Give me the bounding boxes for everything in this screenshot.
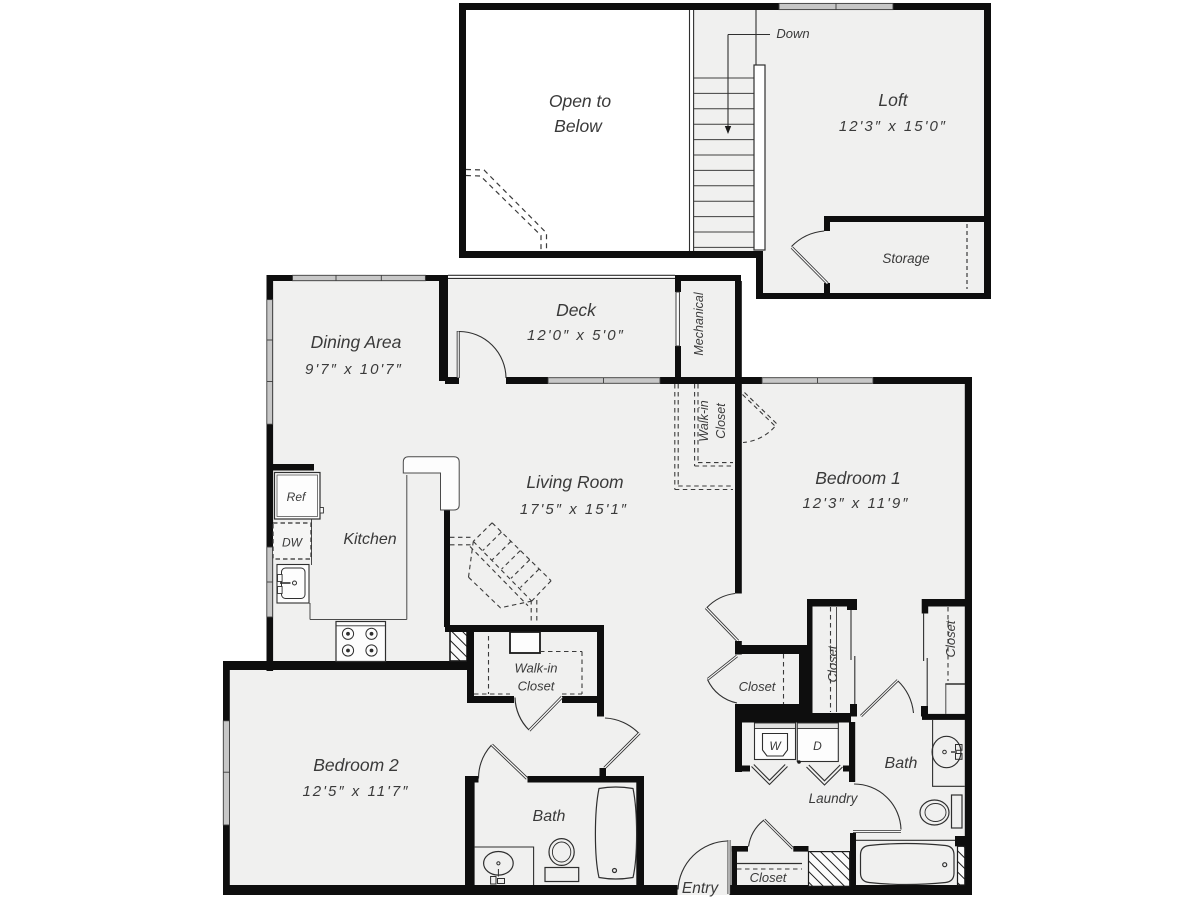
svg-text:12'5″ x 11'7″: 12'5″ x 11'7″ [302,783,409,800]
svg-text:Living Room: Living Room [526,472,623,492]
svg-text:Kitchen: Kitchen [343,531,396,548]
svg-text:12'0″ x 5'0″: 12'0″ x 5'0″ [527,327,625,344]
svg-text:Closet: Closet [750,870,788,885]
svg-text:Laundry: Laundry [809,791,859,806]
svg-text:D: D [813,739,822,753]
svg-text:Closet: Closet [518,679,556,694]
svg-text:Storage: Storage [882,251,929,266]
svg-text:Down: Down [776,26,809,41]
svg-text:9'7″ x 10'7″: 9'7″ x 10'7″ [305,361,403,378]
svg-text:Closet: Closet [943,619,958,657]
svg-text:12'3″ x 11'9″: 12'3″ x 11'9″ [802,495,909,512]
svg-text:Mechanical: Mechanical [692,291,706,355]
svg-text:Closet: Closet [825,644,840,682]
svg-text:Ref: Ref [287,490,307,504]
svg-text:Below: Below [554,116,603,136]
svg-text:Closet: Closet [714,403,728,439]
svg-text:Bedroom 2: Bedroom 2 [313,755,399,775]
svg-text:Closet: Closet [739,679,777,694]
svg-text:Entry: Entry [682,880,719,897]
svg-text:Bedroom 1: Bedroom 1 [815,468,901,488]
svg-text:12'3″ x 15'0″: 12'3″ x 15'0″ [839,118,947,135]
svg-text:Loft: Loft [878,90,908,110]
svg-text:Deck: Deck [556,300,597,320]
svg-text:Walk-in: Walk-in [697,400,711,441]
svg-text:Bath: Bath [533,808,566,825]
svg-text:Dining Area: Dining Area [311,332,402,352]
svg-text:17'5″ x 15'1″: 17'5″ x 15'1″ [520,501,628,518]
svg-text:W: W [769,739,782,753]
svg-text:DW: DW [282,536,304,550]
svg-text:Open to: Open to [549,91,612,111]
svg-text:Walk-in: Walk-in [514,661,557,676]
svg-text:Bath: Bath [885,755,918,772]
